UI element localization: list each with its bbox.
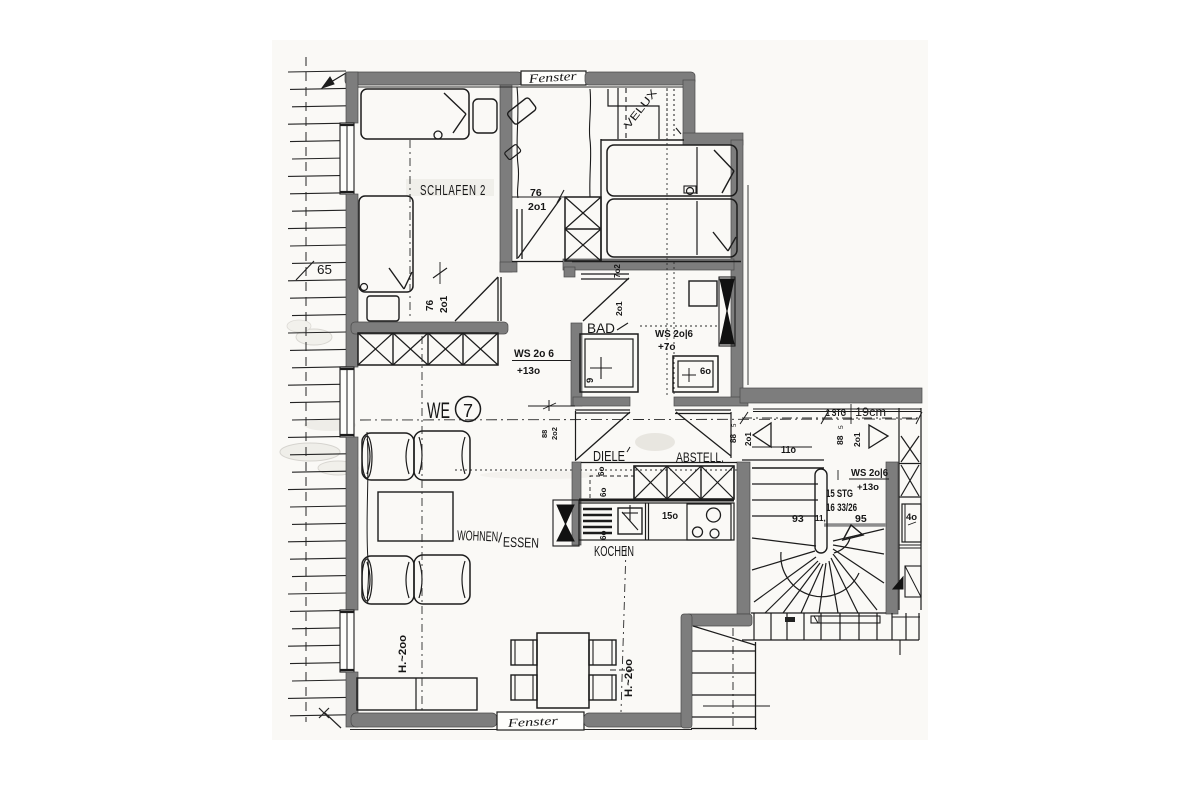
svg-text:76: 76: [530, 187, 542, 199]
svg-text:WE: WE: [427, 398, 450, 423]
svg-text:88: 88: [835, 435, 845, 445]
svg-text:7: 7: [463, 401, 473, 421]
svg-text:H.~2oo: H.~2oo: [623, 659, 635, 697]
svg-text:2o1: 2o1: [614, 301, 624, 316]
svg-text:2o1: 2o1: [744, 432, 753, 446]
svg-text:SCHLAFEN 2: SCHLAFEN 2: [420, 182, 486, 199]
svg-text:4o: 4o: [906, 512, 917, 523]
svg-text:16 33/26: 16 33/26: [826, 502, 857, 514]
svg-text:2o2: 2o2: [550, 427, 559, 440]
svg-text:+13o: +13o: [857, 482, 879, 493]
svg-text:KOCHEN: KOCHEN: [594, 544, 634, 560]
svg-text:11o: 11o: [781, 444, 796, 456]
svg-text:H.~2oo: H.~2oo: [397, 635, 409, 673]
svg-text:6o: 6o: [599, 488, 608, 497]
svg-text:95: 95: [855, 513, 867, 525]
svg-text:9: 9: [585, 378, 596, 383]
svg-text:WOHNEN: WOHNEN: [457, 527, 499, 544]
svg-text:2o1: 2o1: [528, 201, 546, 213]
svg-text:6o: 6o: [599, 531, 608, 540]
svg-text:WS 2o|6: WS 2o|6: [851, 467, 888, 479]
svg-text:Fenster: Fenster: [506, 713, 558, 730]
svg-text:76: 76: [425, 299, 436, 311]
svg-text:93: 93: [792, 513, 804, 525]
svg-text:11,: 11,: [815, 514, 826, 523]
svg-text:+13o: +13o: [517, 366, 540, 377]
svg-text:2o1: 2o1: [852, 432, 862, 447]
svg-text:/: /: [498, 529, 503, 545]
svg-text:15o: 15o: [662, 510, 678, 522]
svg-text:6o: 6o: [700, 366, 711, 377]
svg-text:7o2: 7o2: [613, 264, 622, 278]
svg-text:2o1: 2o1: [439, 295, 450, 313]
svg-text:15 STG: 15 STG: [826, 488, 853, 500]
svg-text:6o: 6o: [597, 467, 606, 476]
svg-text:19cm: 19cm: [855, 405, 886, 419]
svg-text:WS 2o 6: WS 2o 6: [514, 348, 554, 360]
svg-text:5: 5: [838, 425, 845, 429]
svg-text:65: 65: [317, 262, 332, 277]
svg-text:ESSEN: ESSEN: [503, 534, 540, 551]
svg-text:88: 88: [729, 434, 738, 443]
svg-text:88: 88: [540, 430, 549, 438]
